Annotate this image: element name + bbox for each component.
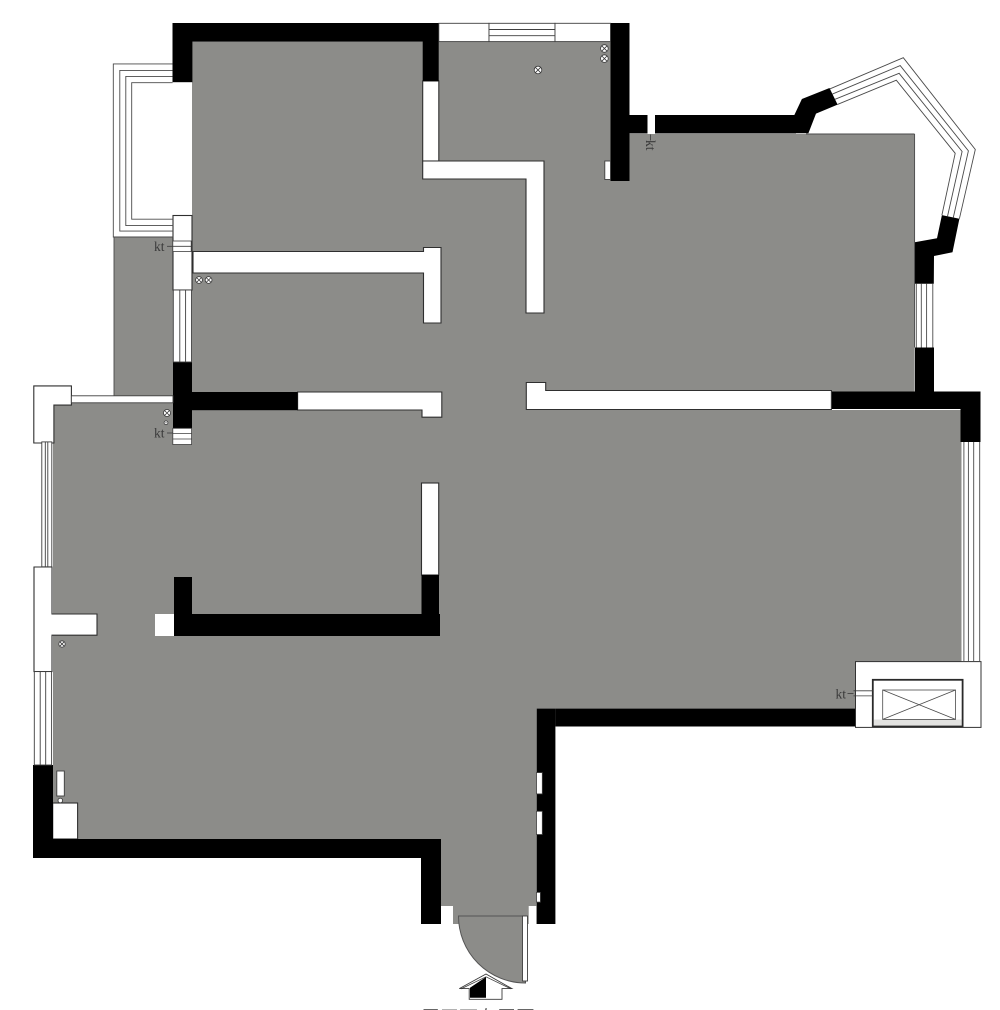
svg-text:kt: kt <box>154 239 165 254</box>
svg-text:kt: kt <box>154 426 165 441</box>
svg-text:kt: kt <box>836 687 847 702</box>
svg-text:kt: kt <box>643 140 658 151</box>
